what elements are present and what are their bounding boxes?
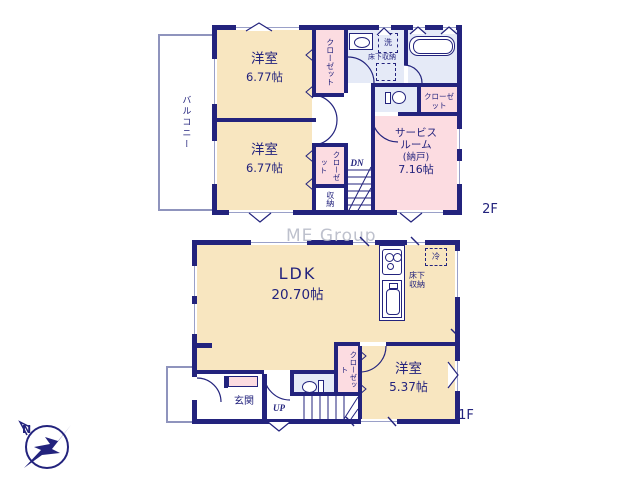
underfloor-storage-2f-label: 床下収納 — [360, 53, 404, 61]
wall-segment — [312, 118, 316, 122]
stove-icon — [382, 249, 402, 275]
window — [235, 25, 300, 30]
balcony-text: バルコニー — [180, 95, 191, 150]
window — [360, 419, 398, 424]
floor2-label: 2F — [476, 202, 504, 217]
ldk-size: 20.70帖 — [240, 288, 355, 304]
burner — [387, 263, 394, 270]
window — [406, 240, 426, 245]
storage-2f-label: 収納 — [316, 188, 344, 209]
fridge-label: 冷 — [432, 252, 440, 261]
wall-segment — [374, 83, 457, 87]
wall-segment — [290, 374, 294, 392]
wall-segment — [344, 25, 348, 93]
service-room-line1: サービス — [375, 127, 457, 139]
bathtub-icon — [409, 36, 455, 56]
bedroom1-2f-label: 洋室 6.77帖 — [217, 52, 312, 84]
floor-plan: バルコニー 洗 床下収納 洋室 6.77帖 — [0, 0, 640, 480]
toilet-tank-1f — [318, 380, 324, 393]
wall-segment — [312, 143, 344, 147]
wall-segment — [386, 342, 460, 346]
service-room-size: 7.16帖 — [375, 164, 457, 177]
underfloor-storage-1f-label: 床下 収納 — [404, 271, 430, 290]
toilet-tank-2f — [385, 92, 391, 104]
window — [192, 265, 197, 297]
closet-mid-2f-label: クローゼット — [317, 149, 343, 183]
underfloor-storage-2f-box — [376, 63, 396, 81]
window — [457, 160, 462, 185]
underfloor-1f-line1: 床下 — [409, 271, 425, 280]
window — [192, 303, 197, 335]
window — [455, 360, 460, 392]
service-room-line3: (納戸) — [375, 152, 457, 163]
fridge-space: 冷 — [425, 248, 447, 266]
washbasin-icon — [349, 33, 373, 50]
toilet-bowl-2f — [392, 91, 406, 104]
stairs-up-label: UP — [268, 403, 290, 414]
compass-north-label: N — [22, 423, 31, 436]
window — [396, 210, 444, 215]
service-room-line2: ルーム — [375, 139, 457, 151]
shoe-cabinet — [228, 376, 258, 387]
front-door-gap — [192, 377, 197, 400]
faucet — [389, 283, 398, 289]
sink-basin — [386, 289, 400, 315]
compass-circle — [26, 426, 68, 468]
wall-segment — [192, 343, 212, 348]
window — [455, 250, 460, 298]
kitchen-sink-icon — [382, 280, 402, 318]
bedroom-1f-name: 洋室 — [362, 362, 455, 378]
bedroom2-2f-label: 洋室 6.77帖 — [217, 143, 312, 175]
wall-segment — [192, 419, 460, 424]
service-room-label: サービス ルーム (納戸) 7.16帖 — [375, 127, 457, 177]
wall-segment — [290, 392, 358, 396]
wall-segment — [192, 370, 264, 374]
bedroom-1f-label: 洋室 5.37帖 — [362, 362, 455, 394]
bedroom2-2f-name: 洋室 — [217, 143, 312, 159]
window — [228, 210, 294, 215]
wall-segment — [398, 112, 457, 116]
toilet-bowl-1f — [302, 381, 317, 393]
underfloor-1f-line2: 収納 — [409, 280, 425, 289]
window — [442, 25, 457, 30]
wall-segment — [457, 25, 462, 215]
washbasin-bowl — [354, 37, 370, 48]
bedroom-1f-size: 5.37帖 — [362, 380, 455, 394]
floor1-label: 1F — [452, 408, 480, 423]
wall-segment — [212, 118, 312, 122]
entrance-porch — [166, 366, 194, 423]
wall-segment — [312, 93, 344, 97]
bedroom2-2f-size: 6.77帖 — [217, 162, 312, 176]
wall-segment — [262, 374, 267, 419]
laundry-label: 洗 — [384, 38, 392, 47]
watermark: ME Group — [286, 226, 377, 246]
bedroom1-2f-name: 洋室 — [217, 52, 312, 68]
closet-right-2f-label: クローゼット — [421, 93, 457, 111]
window — [412, 25, 426, 30]
wall-segment — [404, 25, 408, 65]
ldk-name: LDK — [240, 265, 355, 284]
window — [457, 128, 462, 150]
entrance-label: 玄関 — [226, 396, 262, 408]
ldk-room-extension — [197, 342, 334, 370]
bedroom1-2f-size: 6.77帖 — [217, 71, 312, 85]
closet-top-2f-label: クローゼット — [316, 34, 344, 90]
compass-needle — [24, 425, 71, 468]
compass-arrow — [20, 422, 30, 435]
window — [378, 25, 392, 30]
laundry-space: 洗 — [378, 33, 398, 53]
bathtub-inner — [413, 39, 453, 54]
burner — [393, 253, 402, 262]
stairs-down-label: DN — [346, 158, 368, 169]
wall-segment — [290, 370, 334, 374]
ldk-label: LDK 20.70帖 — [240, 265, 355, 304]
closet-1f-label: クローゼット — [338, 348, 358, 391]
wall-segment — [344, 143, 348, 210]
north-compass: N — [20, 422, 71, 468]
balcony-label: バルコニー — [158, 34, 212, 211]
